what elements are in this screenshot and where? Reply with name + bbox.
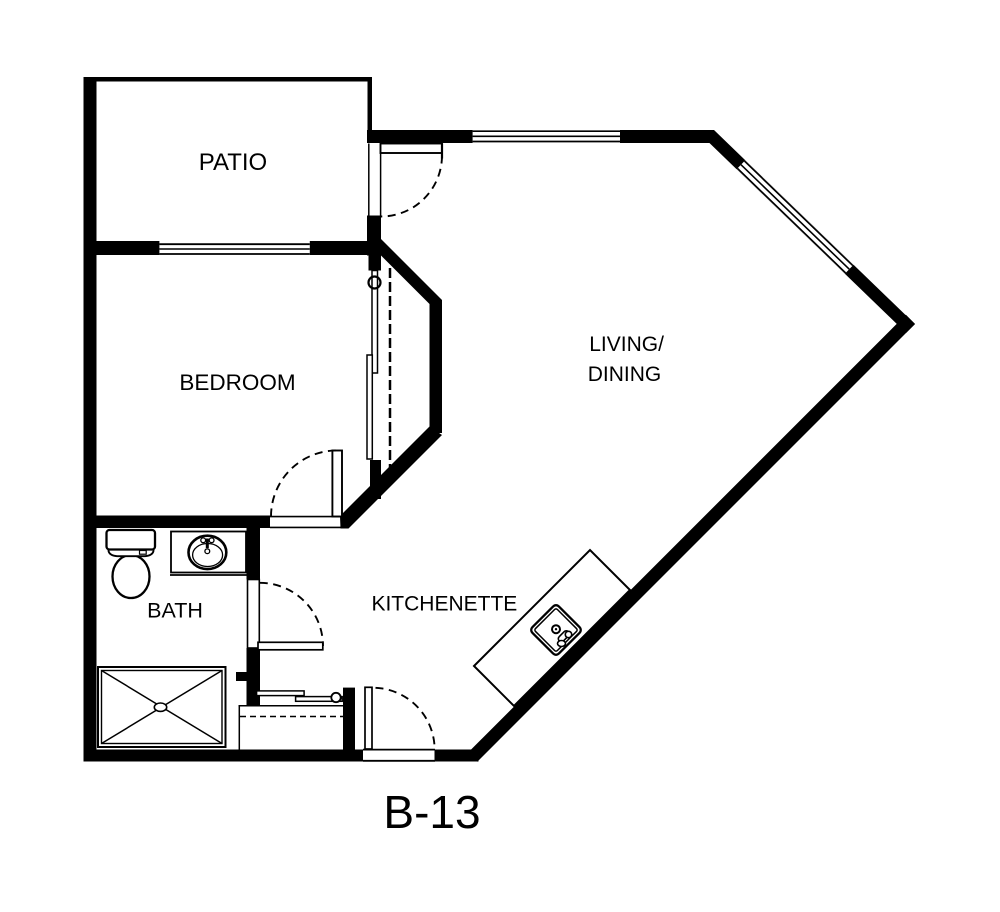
svg-text:KITCHENETTE: KITCHENETTE xyxy=(371,593,517,616)
svg-text:PATIO: PATIO xyxy=(199,149,267,176)
svg-text:LIVING/: LIVING/ xyxy=(589,333,664,356)
svg-text:BATH: BATH xyxy=(147,599,203,623)
svg-text:DINING: DINING xyxy=(588,363,662,386)
svg-text:BEDROOM: BEDROOM xyxy=(179,370,295,395)
svg-text:B-13: B-13 xyxy=(383,786,480,838)
